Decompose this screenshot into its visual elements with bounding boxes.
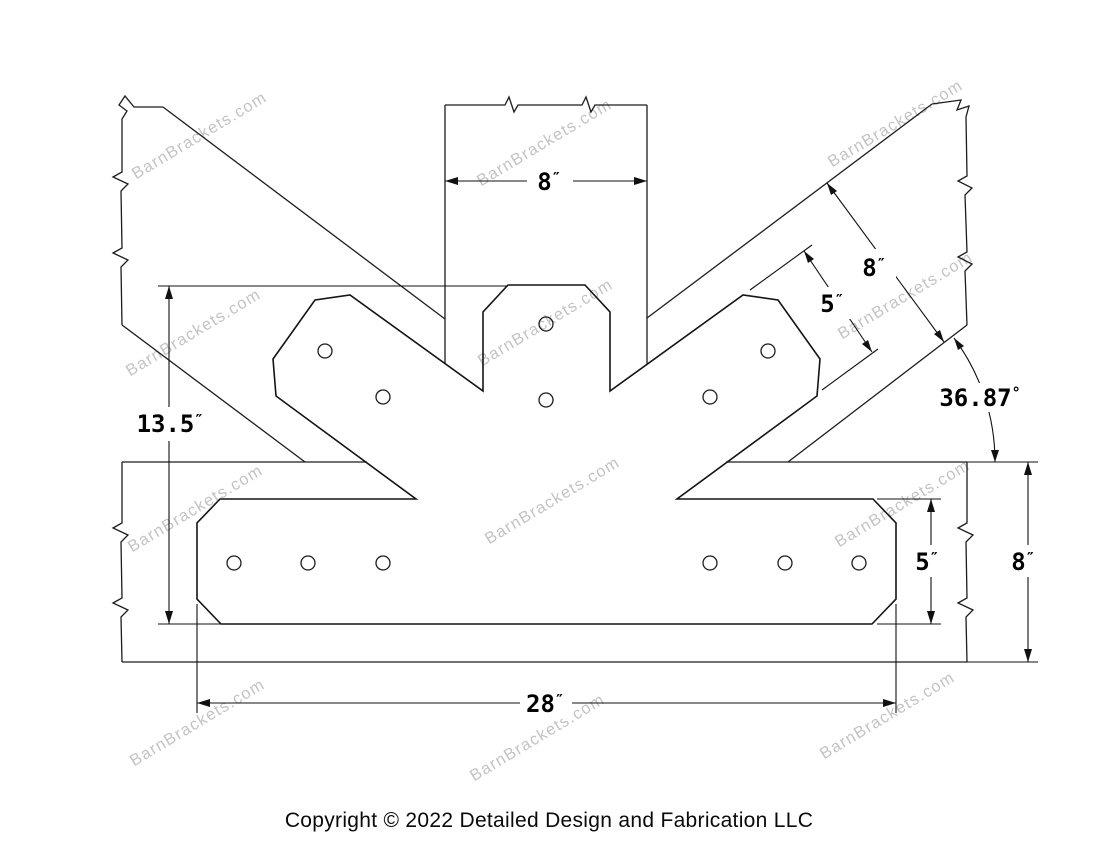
right-diagonal-beam-break-edge — [932, 100, 972, 325]
bolt-hole — [376, 556, 390, 570]
arrowhead — [934, 330, 944, 342]
bracket-plate-outline — [197, 285, 896, 624]
left-diagonal-beam-break-edge — [113, 96, 163, 325]
bolt-hole — [761, 344, 775, 358]
extension-line — [158, 286, 508, 624]
copyright-text: Copyright © 2022 Detailed Design and Fab… — [285, 809, 813, 832]
bolt-hole — [301, 556, 315, 570]
watermark-text: BarnBrackets.com — [125, 461, 266, 556]
arrowhead — [862, 340, 872, 352]
bolt-hole — [227, 556, 241, 570]
bolt-hole — [703, 390, 717, 404]
bottom-beam-right-break-edge — [958, 462, 973, 662]
bracket-plate-layer — [197, 285, 896, 624]
arrowhead — [927, 499, 935, 512]
bolt-hole — [778, 556, 792, 570]
bottom-beam-left-break-edge — [113, 462, 128, 662]
arrowhead — [927, 611, 935, 624]
dimension-layer — [158, 177, 1038, 713]
bolt-hole — [852, 556, 866, 570]
watermark-text: BarnBrackets.com — [832, 456, 973, 551]
dimension-label-angle: 36.87° — [939, 384, 1020, 412]
bolt-hole — [703, 556, 717, 570]
watermark-text: BarnBrackets.com — [482, 453, 623, 548]
arrowhead — [804, 251, 814, 263]
left-diagonal-beam-lower-edge — [122, 325, 305, 462]
bolt-hole — [376, 390, 390, 404]
dimension-label-plate-height: 13.5″ — [137, 410, 204, 438]
dimension-labels: 8″ 13.5″ 28″ 8″ 5″ 36.87° 5″ 8″ — [131, 166, 1045, 719]
watermark-text: BarnBrackets.com — [817, 668, 958, 763]
arrowhead — [991, 450, 999, 462]
left-diagonal-beam-upper-edge — [163, 107, 445, 319]
bolt-hole — [539, 393, 553, 407]
arrowhead — [197, 699, 210, 707]
arrowhead — [165, 611, 173, 624]
drawing-page: BarnBrackets.com BarnBrackets.com BarnBr… — [0, 0, 1100, 850]
arrowhead — [445, 177, 458, 185]
post-top-break-edge — [445, 97, 647, 112]
watermark-text: BarnBrackets.com — [129, 88, 270, 183]
arrowhead — [1024, 462, 1032, 475]
arrowhead — [1024, 649, 1032, 662]
watermark-text: BarnBrackets.com — [825, 76, 966, 171]
arrowhead — [165, 286, 173, 299]
watermark-text: BarnBrackets.com — [123, 285, 264, 380]
bolt-hole — [318, 344, 332, 358]
arrowhead — [827, 183, 837, 195]
arrowhead — [634, 177, 647, 185]
arrowhead — [954, 338, 964, 350]
right-diagonal-beam-upper-edge — [647, 104, 932, 318]
watermark-text: BarnBrackets.com — [475, 275, 616, 370]
bracket-drawing-canvas: BarnBrackets.com BarnBrackets.com BarnBr… — [0, 0, 1100, 850]
